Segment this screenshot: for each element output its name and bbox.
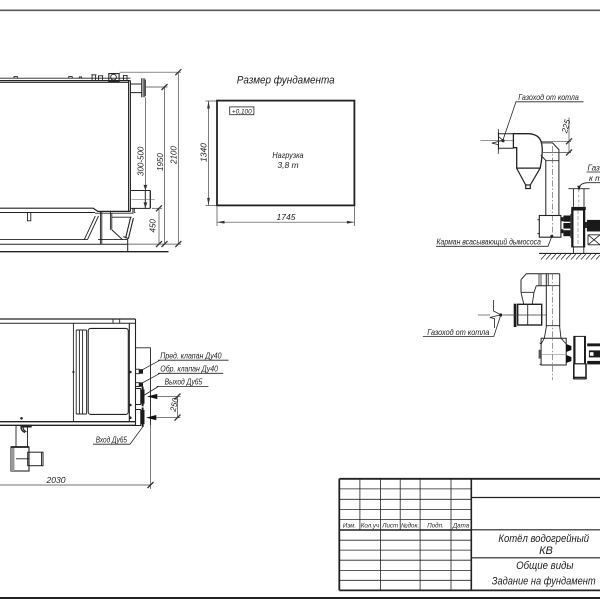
svg-text:1340: 1340	[199, 143, 209, 162]
svg-text:Пред. клапан Ду40: Пред. клапан Ду40	[160, 351, 222, 360]
svg-text:Размер фундамента: Размер фундамента	[237, 75, 335, 87]
svg-text:Обр. клапан Ду40: Обр. клапан Ду40	[160, 365, 218, 374]
svg-text:№док.: №док.	[401, 523, 419, 530]
svg-text:450: 450	[149, 219, 158, 233]
svg-text:Нагрузка: Нагрузка	[272, 150, 303, 160]
svg-text:Выход Ду65: Выход Ду65	[165, 378, 203, 387]
svg-text:3,8 т: 3,8 т	[277, 160, 298, 170]
svg-text:Вход Ду65: Вход Ду65	[96, 435, 128, 444]
svg-text:Котёл водогрейный: Котёл водогрейный	[498, 533, 589, 545]
svg-text:Общие виды: Общие виды	[516, 560, 573, 572]
svg-text:Кол.уч: Кол.уч	[361, 523, 380, 530]
svg-text:Газоход от котла: Газоход от котла	[518, 93, 579, 102]
svg-text:к т: к т	[589, 174, 600, 183]
svg-text:1745: 1745	[277, 212, 296, 222]
svg-text:Дата: Дата	[452, 523, 470, 530]
svg-text:1950: 1950	[156, 153, 165, 171]
svg-text:Задание на фундамент: Задание на фундамент	[492, 576, 596, 588]
svg-text:Лист: Лист	[381, 523, 398, 530]
svg-text:300-500: 300-500	[136, 146, 145, 176]
svg-text:Карман всасывающий дымососа: Карман всасывающий дымососа	[437, 238, 542, 247]
svg-text:Газ: Газ	[588, 164, 600, 173]
svg-text:Газоход от котла: Газоход от котла	[427, 328, 489, 337]
svg-text:Изм.: Изм.	[343, 523, 356, 530]
svg-text:КВ: КВ	[539, 545, 553, 557]
svg-text:2100: 2100	[170, 146, 179, 165]
svg-text:+0,100: +0,100	[232, 108, 252, 115]
svg-text:Подп.: Подп.	[427, 523, 443, 530]
svg-text:2030: 2030	[46, 475, 66, 485]
